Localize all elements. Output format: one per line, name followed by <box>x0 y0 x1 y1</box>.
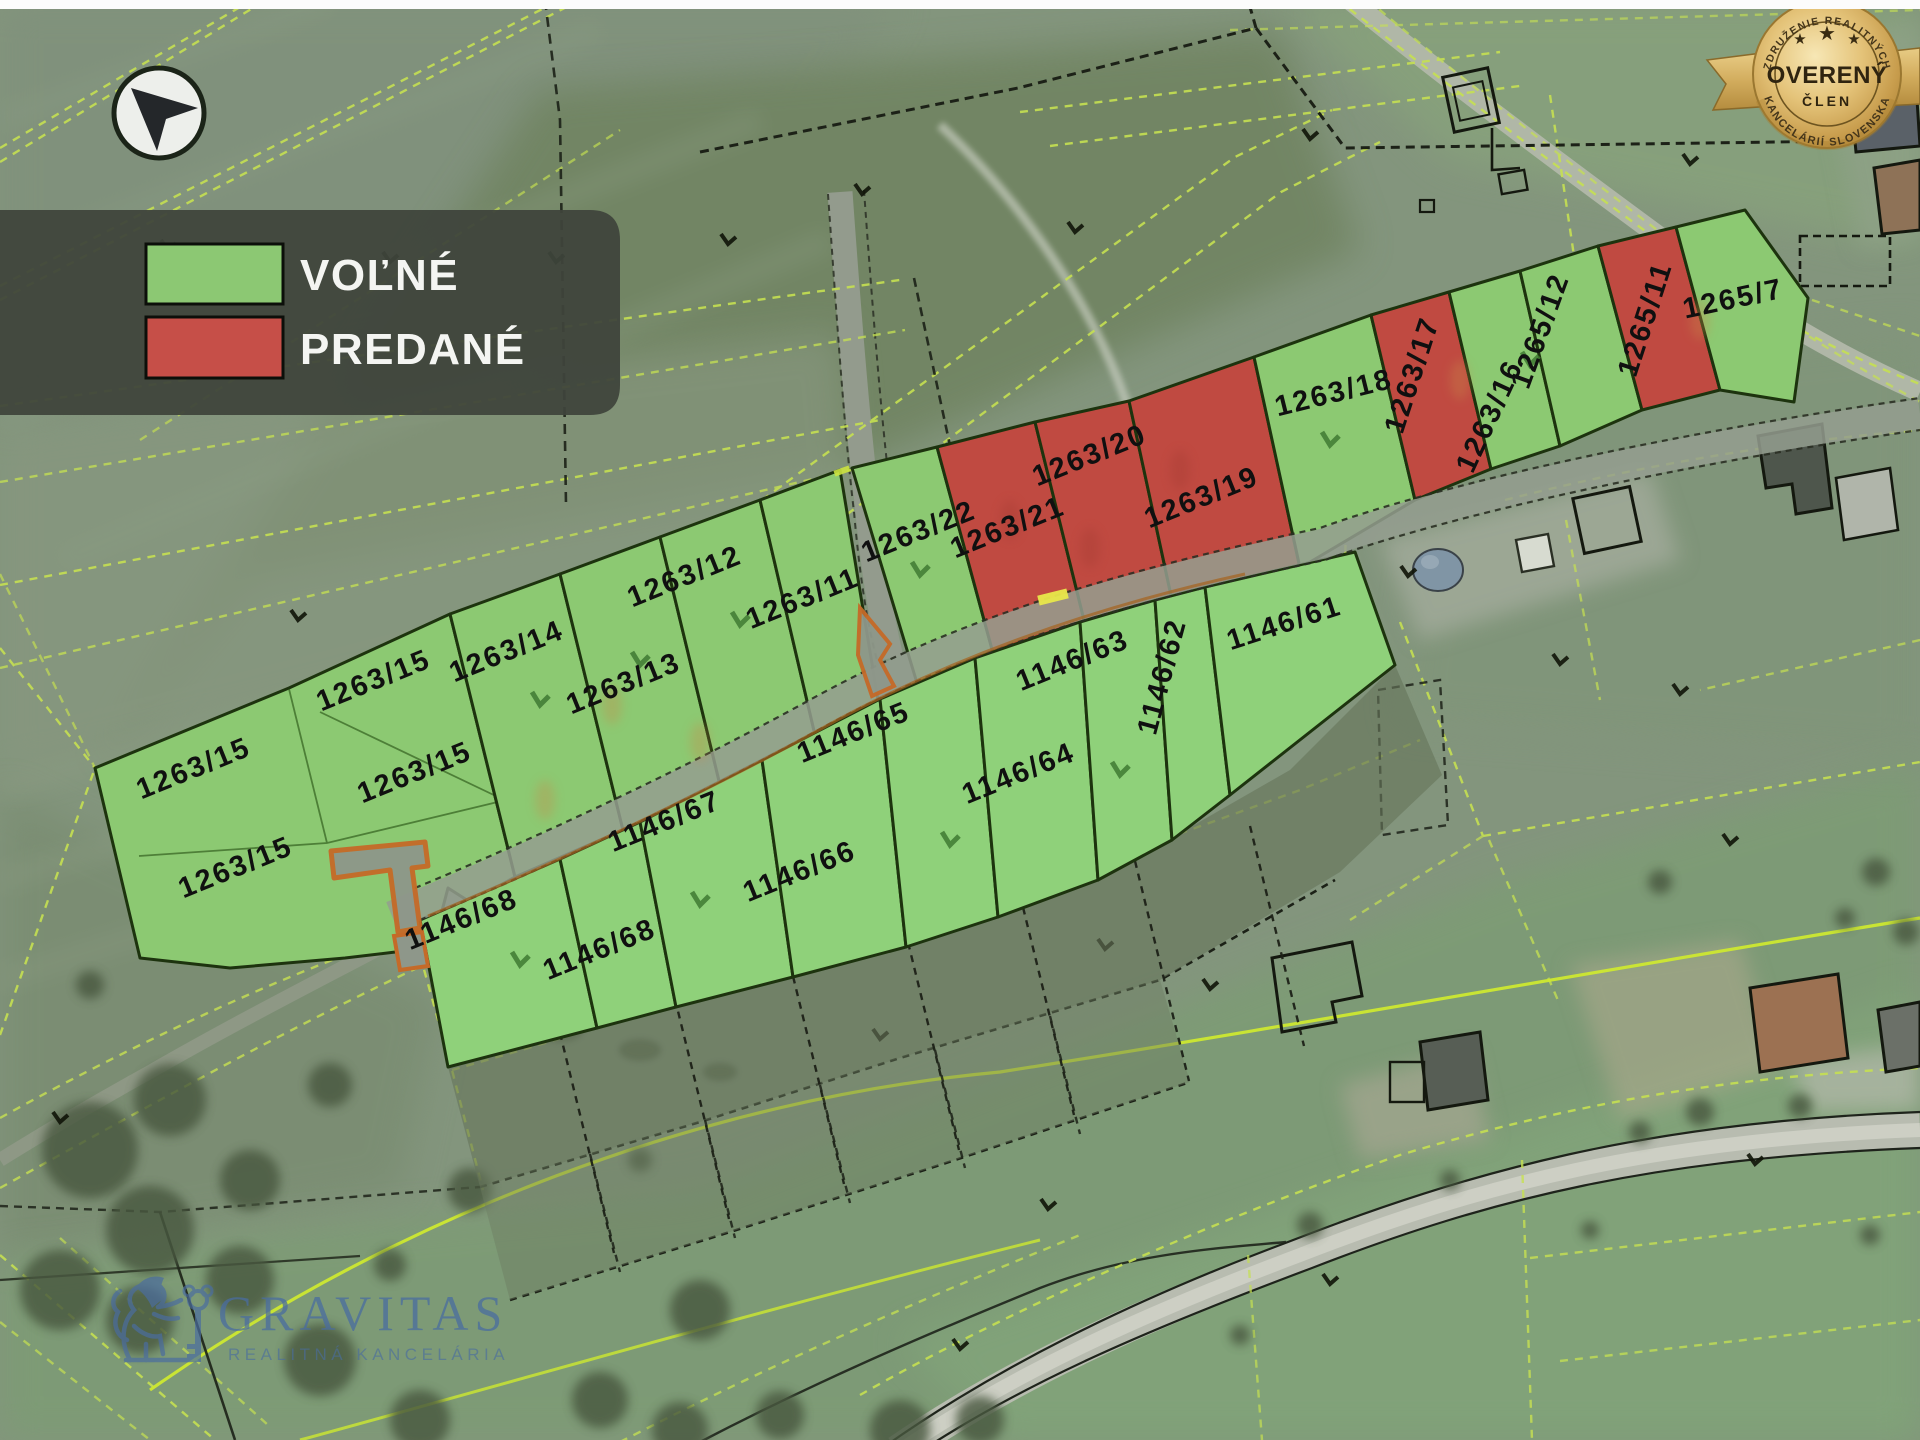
svg-text:ČLEN: ČLEN <box>1802 92 1852 109</box>
svg-text:VOĽNÉ: VOĽNÉ <box>300 250 459 300</box>
svg-text:PREDANÉ: PREDANÉ <box>300 324 526 374</box>
svg-text:GRAVITAS: GRAVITAS <box>218 1285 508 1341</box>
svg-text:OVERENÝ: OVERENÝ <box>1767 61 1888 89</box>
svg-text:REALITNÁ KANCELÁRIA: REALITNÁ KANCELÁRIA <box>228 1345 509 1364</box>
